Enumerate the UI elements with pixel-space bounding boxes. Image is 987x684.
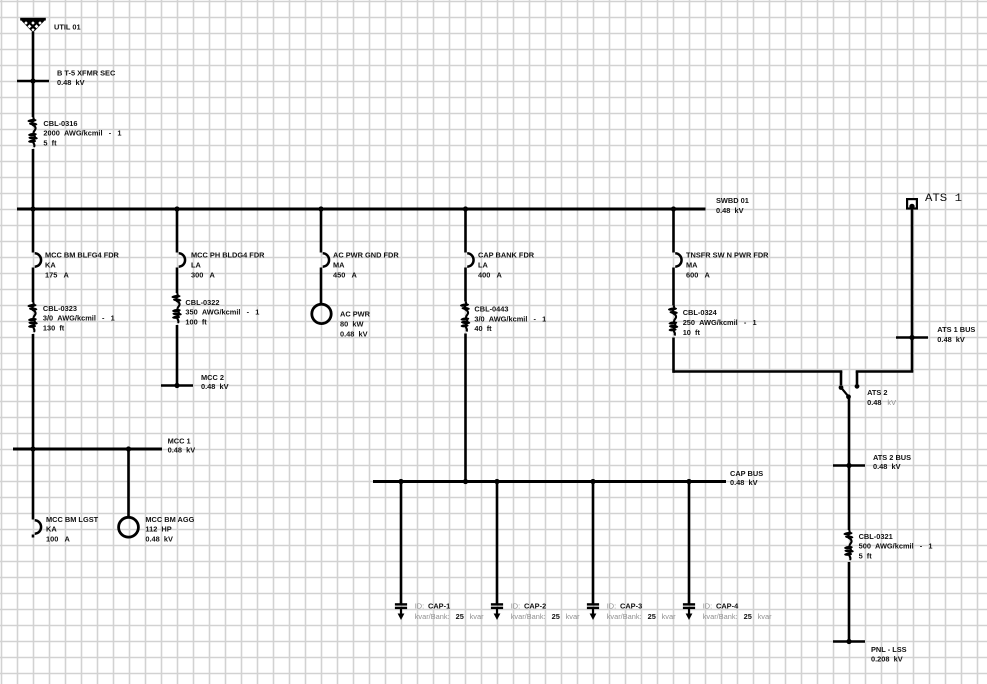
svg-text:CBL-0443: CBL-0443 — [474, 305, 508, 314]
svg-text:kvar: kvar — [662, 612, 677, 621]
svg-text:CBL-0316: CBL-0316 — [43, 119, 77, 128]
svg-text:175 A: 175 A — [45, 270, 69, 279]
svg-text:MA: MA — [686, 261, 698, 270]
svg-text:TNSFR SW N PWR FDR: TNSFR SW N PWR FDR — [686, 251, 769, 260]
svg-text:0.48 kV: 0.48 kV — [730, 478, 758, 487]
svg-text:CBL-0324: CBL-0324 — [683, 308, 718, 317]
svg-text:MCC 2: MCC 2 — [201, 373, 224, 382]
svg-text:CAP-4: CAP-4 — [716, 602, 739, 611]
svg-text:112 HP: 112 HP — [145, 525, 171, 534]
svg-text:25: 25 — [744, 612, 752, 621]
svg-text:kvar/Bank:: kvar/Bank: — [607, 612, 642, 621]
svg-text:ATS 2: ATS 2 — [867, 388, 887, 397]
svg-text:CBL-0323: CBL-0323 — [43, 304, 77, 313]
svg-text:AC PWR GND FDR: AC PWR GND FDR — [333, 251, 399, 260]
svg-text:kvar/Bank:: kvar/Bank: — [511, 612, 546, 621]
svg-text:3/0 AWG/kcmil - 1: 3/0 AWG/kcmil - 1 — [474, 314, 546, 323]
svg-text:B T-5 XFMR SEC: B T-5 XFMR SEC — [57, 68, 116, 77]
svg-text:SWBD 01: SWBD 01 — [716, 196, 749, 205]
svg-text:130 ft: 130 ft — [43, 323, 65, 332]
svg-text:kvar: kvar — [566, 612, 581, 621]
svg-text:0.48 kV: 0.48 kV — [340, 329, 368, 338]
svg-text:LA: LA — [478, 261, 489, 270]
svg-text:MCC BM LGST: MCC BM LGST — [46, 515, 99, 524]
svg-text:600 A: 600 A — [686, 270, 710, 279]
svg-text:KA: KA — [46, 525, 57, 534]
svg-text:kvar/Bank:: kvar/Bank: — [703, 612, 738, 621]
svg-text:350 AWG/kcmil - 1: 350 AWG/kcmil - 1 — [185, 308, 259, 317]
svg-text:0.48: 0.48 — [867, 398, 881, 407]
svg-text:MCC 1: MCC 1 — [168, 436, 191, 445]
svg-text:5 ft: 5 ft — [859, 552, 873, 561]
svg-text:25: 25 — [648, 612, 656, 621]
svg-text:0.48 kV: 0.48 kV — [57, 78, 85, 87]
svg-text:0.48 kV: 0.48 kV — [716, 206, 744, 215]
svg-text:0.48 kV: 0.48 kV — [937, 335, 965, 344]
svg-text:UTIL 01: UTIL 01 — [54, 23, 81, 32]
svg-text:0.208 kV: 0.208 kV — [871, 655, 903, 664]
svg-text:ATS 1 BUS: ATS 1 BUS — [937, 325, 975, 334]
svg-text:500 AWG/kcmil - 1: 500 AWG/kcmil - 1 — [859, 542, 933, 551]
svg-text:MCC BM AGG: MCC BM AGG — [145, 515, 194, 524]
svg-text:ID:: ID: — [607, 602, 616, 611]
svg-text:kvar: kvar — [758, 612, 773, 621]
svg-text:450 A: 450 A — [333, 270, 357, 279]
svg-text:MCC BM BLFG4 FDR: MCC BM BLFG4 FDR — [45, 251, 120, 260]
svg-text:AC PWR: AC PWR — [340, 310, 371, 319]
svg-text:0.48 kV: 0.48 kV — [145, 535, 173, 544]
svg-text:10 ft: 10 ft — [683, 328, 701, 337]
svg-text:CBL-0321: CBL-0321 — [859, 532, 893, 541]
svg-text:300 A: 300 A — [191, 270, 215, 279]
svg-text:ID:: ID: — [415, 602, 424, 611]
svg-text:25: 25 — [456, 612, 464, 621]
svg-text:100 A: 100 A — [46, 535, 70, 544]
svg-text:CAP-1: CAP-1 — [428, 602, 450, 611]
svg-text:0.48 kV: 0.48 kV — [201, 382, 229, 391]
svg-text:ID:: ID: — [511, 602, 520, 611]
svg-text:100 ft: 100 ft — [185, 317, 207, 326]
svg-text:kvar/Bank:: kvar/Bank: — [415, 612, 450, 621]
svg-text:80 kW: 80 kW — [340, 320, 363, 329]
svg-text:KA: KA — [45, 261, 56, 270]
svg-text:CAP-3: CAP-3 — [620, 602, 642, 611]
svg-text:MA: MA — [333, 261, 345, 270]
svg-text:ATS 2 BUS: ATS 2 BUS — [873, 453, 911, 462]
svg-text:kV: kV — [887, 398, 896, 407]
svg-text:25: 25 — [552, 612, 560, 621]
svg-text:3/0 AWG/kcmil - 1: 3/0 AWG/kcmil - 1 — [43, 314, 115, 323]
svg-text:250 AWG/kcmil - 1: 250 AWG/kcmil - 1 — [683, 318, 757, 327]
svg-text:CAP-2: CAP-2 — [524, 602, 546, 611]
svg-text:5 ft: 5 ft — [43, 139, 57, 148]
svg-text:40 ft: 40 ft — [474, 324, 492, 333]
svg-text:PNL - LSS: PNL - LSS — [871, 645, 907, 654]
svg-text:MCC PH BLDG4 FDR: MCC PH BLDG4 FDR — [191, 251, 265, 260]
svg-text:400 A: 400 A — [478, 270, 502, 279]
svg-text:kvar: kvar — [470, 612, 485, 621]
svg-text:0.48 kV: 0.48 kV — [873, 462, 901, 471]
svg-text:LA: LA — [191, 261, 202, 270]
svg-text:CAP BANK FDR: CAP BANK FDR — [478, 251, 535, 260]
svg-text:ID:: ID: — [703, 602, 712, 611]
svg-text:CBL-0322: CBL-0322 — [185, 298, 219, 307]
svg-text:0.48 kV: 0.48 kV — [168, 445, 196, 454]
svg-text:2000 AWG/kcmil - 1: 2000 AWG/kcmil - 1 — [43, 129, 121, 138]
svg-text:ATS 1: ATS 1 — [925, 193, 962, 205]
svg-text:CAP BUS: CAP BUS — [730, 469, 763, 478]
